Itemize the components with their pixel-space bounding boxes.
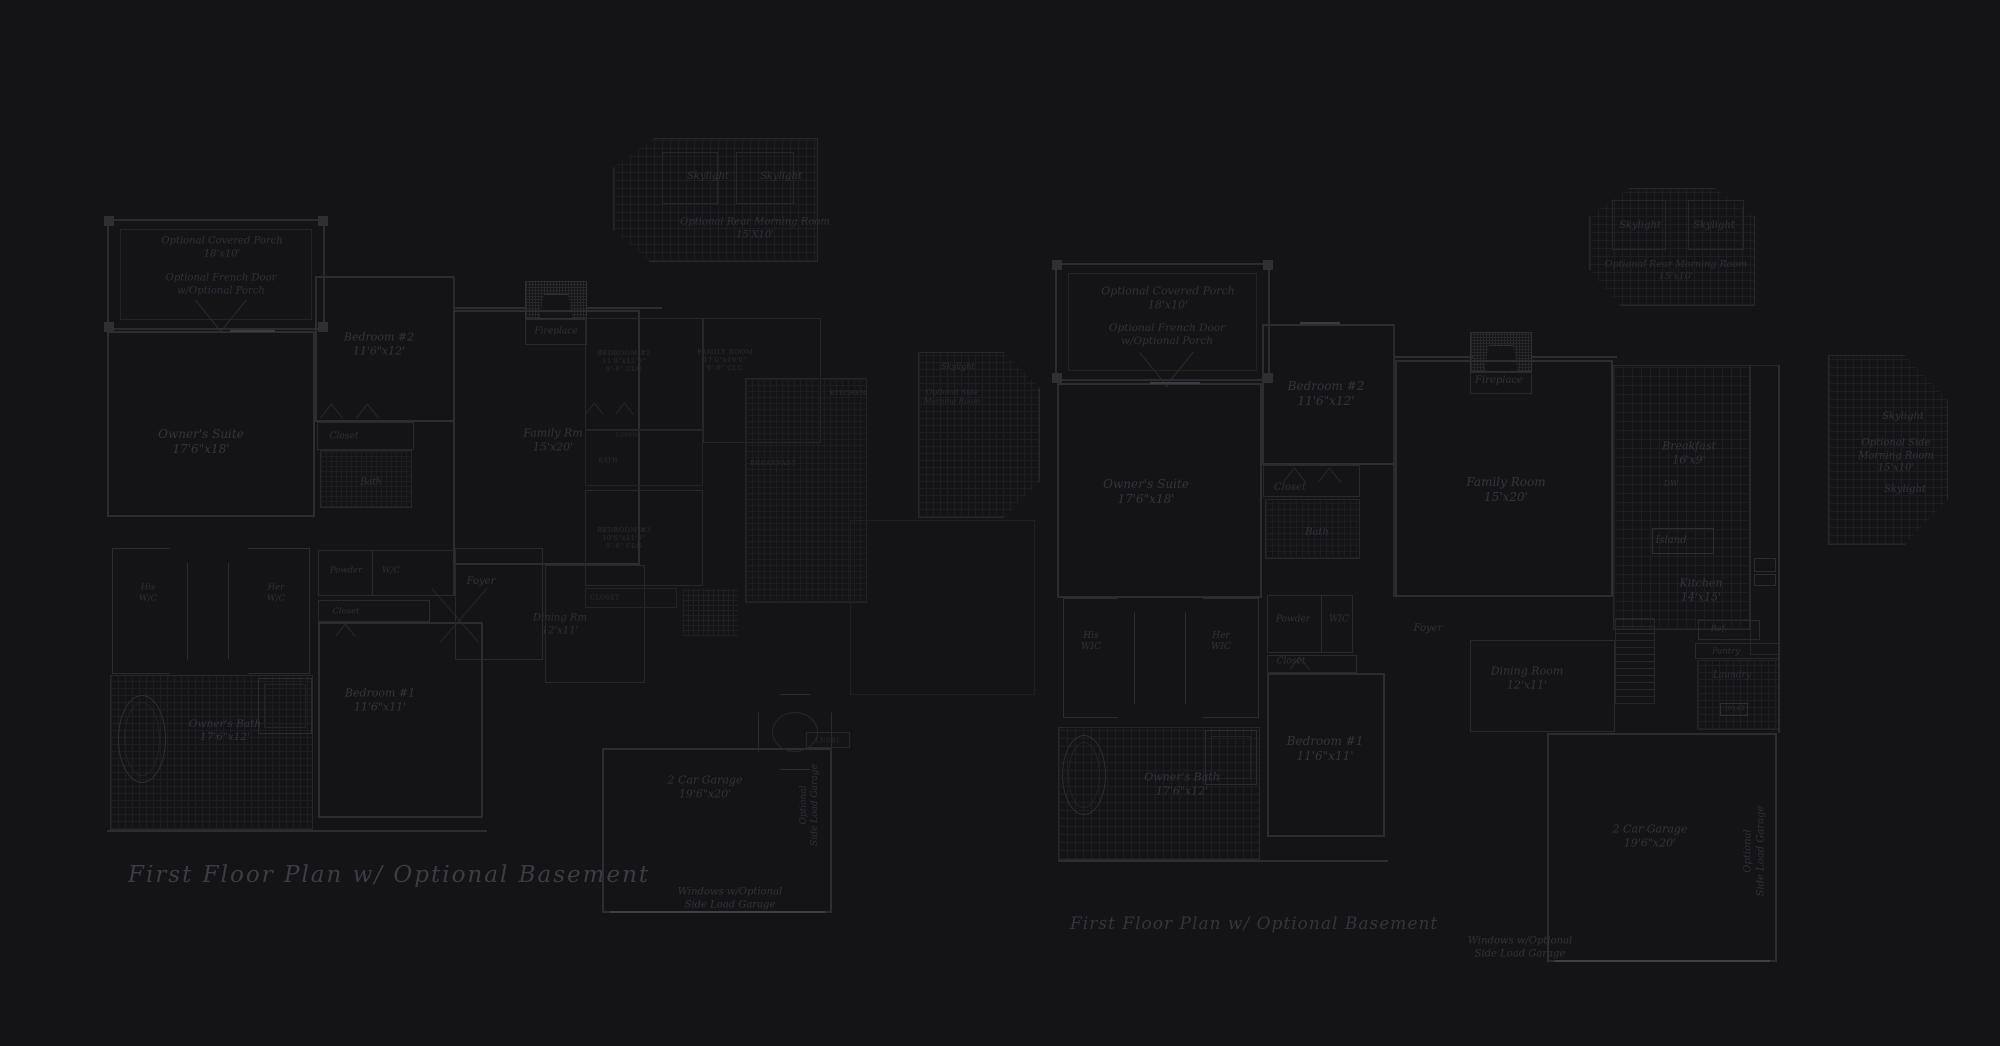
left-plan-title: First Floor Plan w/ Optional Basement [128,862,650,888]
right-breakfast-label: Breakfast16'x9' [1662,439,1716,467]
right-rear-skylight-1-label: Skylight [1619,220,1661,233]
left-his-wic-label: HisW/C [139,582,157,603]
left-powder-label: Powder [330,566,362,577]
left-her-wic-room [228,548,310,674]
right-dining-room-label: Dining Room12'x11' [1491,664,1564,692]
right-rear-skylight-2-label: Skylight [1693,220,1735,233]
mid-bedroom2-label: BEDROOM #211'0"x12'0"9'-0" CLG [597,349,651,373]
left-house-bottom-wall [107,830,487,832]
right-tub-inner [1068,742,1100,808]
right-closet-label: Closet [1277,656,1306,667]
floor-plan-canvas: First Floor Plan w/ Optional Basement Fi… [0,0,2000,1046]
right-pantry-label: Pantry [1712,647,1740,658]
left-family-room-label: Family Rm15'x20' [523,426,582,454]
right-her-wic-room [1185,598,1259,718]
right-her-wic-label: HerWIC [1211,631,1231,654]
left-porch-post-tl [104,216,114,226]
mid-lndry-label: LNDRY [816,737,841,745]
left-owners-bath-label: Owner's Bath17'6"x12' [189,718,261,744]
right-laundry-label: Laundry [1713,670,1751,681]
mid-bath-label: BATH [598,457,618,465]
left-rear-morning-room-label: Optional Rear Morning Room15'X10' [680,217,830,242]
left-owners-suite-label: Owner's Suite17'6"x18' [158,427,244,457]
right-his-wic-label: HisWIC [1081,631,1101,654]
right-house-right-wall [1778,365,1780,733]
mid-family-room-label: FAMILY ROOM17'0"x19'0"9'-0" CLG [697,348,753,372]
left-garage-label: 2 Car Garage19'6"x20' [668,773,743,801]
left-foyer-room [455,548,543,660]
right-closet-b2-label: Closet [1274,482,1306,495]
left-porch-label: Optional Covered Porch18'x10' [161,236,282,261]
right-ref-label: Ref. [1711,624,1727,634]
left-porch-post-tr [318,216,328,226]
right-foyer-label: Foyer [1414,623,1443,636]
right-side-load-garage-label: OptionalSide Load Garage [1743,806,1768,897]
mid-bedroom3-label: BEDROOM #310'6"x11'0"9'-0" CLG [597,526,651,550]
right-powder-label: Powder [1276,614,1310,625]
left-skylight-1-label: Skylight [687,171,729,184]
right-bedroom1-label: Bedroom #111'6"x11' [1287,734,1364,764]
right-side-morning-room-label: Optional SideMorning Room15'x10' [1858,437,1934,475]
right-side-skylight-2-label: Skylight [1884,484,1926,497]
right-owners-suite-label: Owner's Suite17'6"x18' [1103,477,1189,507]
left-side-load-garage-label: OptionalSide Load Garage [799,764,822,846]
right-porch-post-tl [1052,260,1062,270]
left-french-door-label: Optional French Doorw/Optional Porch [166,273,277,298]
mid-stair-floor [683,588,738,636]
right-porch-post-tr [1263,260,1273,270]
right-plan-title: First Floor Plan w/ Optional Basement [1070,914,1438,934]
right-french-door-label: Optional French Doorw/Optional Porch [1109,322,1225,348]
left-bedroom1-label: Bedroom #111'6"x11' [345,686,415,714]
right-top-wall-a [1395,356,1473,358]
mid-side-morning-floor [918,352,1040,518]
right-wic-label: WIC [1329,614,1349,625]
left-tub-inner [124,702,160,776]
left-top-wall-a [455,307,527,309]
mid-side-morning-room-label: Optional SideMorning Room [924,388,981,407]
right-bath-label: Bath [1305,527,1329,540]
right-wall-accent [1150,382,1200,384]
left-owners-suite-room [107,331,315,517]
right-rear-morning-room-label: Optional Rear Morning Room15'x10' [1605,259,1747,283]
right-garage-label: 2 Car Garage19'6"x20' [1613,822,1688,850]
left-dining-label: Dining Rm12'x11' [533,613,587,638]
right-stairs [1615,618,1655,704]
right-sink-b [1754,574,1776,586]
right-fireplace-label: Fireplace [1475,375,1523,388]
mid-skylight-label: Skylight [941,362,974,372]
left-fireplace-label: Fireplace [534,326,577,337]
right-bedroom2-label: Bedroom #211'6"x12' [1288,379,1365,409]
mid-breakfast-label: BREAKFAST [750,459,796,467]
left-shower-inner [264,684,306,728]
right-family-room-label: Family Room15'x20' [1466,475,1545,505]
right-windows-note-label: Windows w/OptionalSide Load Garage [1468,936,1572,961]
left-his-wic-room [112,548,188,674]
left-bedroom2-label: Bedroom #211'6"x12' [344,330,414,358]
left-closet-b2-label: Closet [330,431,359,442]
left-closet2-label: Closet [332,607,359,618]
mid-kitchen-floor [745,378,867,603]
mid-linen-label: LINEN [616,433,638,440]
right-sink-a [1754,558,1776,572]
left-powder-divider [372,550,373,596]
right-dw-label: DW [1664,479,1679,489]
left-top-wall-b [587,307,662,309]
right-island-label: Island [1655,535,1686,548]
right-porch-post-bl [1052,373,1062,383]
right-owners-bath-label: Owner's Bath17'6"x12' [1144,770,1220,798]
right-30x48-label: 30x48 [1723,705,1745,714]
right-top-wall-b [1532,356,1617,358]
right-garage-door-sill [1555,960,1770,962]
right-counter-strip [1750,365,1780,655]
left-wall-accent [230,330,275,332]
left-bath-label: Bath [360,477,381,488]
right-ref-box [1698,620,1760,640]
right-house-bottom-wall [1058,860,1388,862]
left-foyer-label: Foyer [467,576,496,589]
left-her-wic-label: HerW/C [267,582,285,603]
mid-closet-label: CLOSET [591,594,620,602]
left-skylight-2-label: Skylight [760,171,802,184]
left-windows-note-label: Windows w/OptionalSide Load Garage [678,887,782,912]
right-side-skylight-1-label: Skylight [1882,411,1924,424]
right-wall-accent [1300,322,1340,324]
mid-right-rooms [850,520,1035,695]
right-porch-label: Optional Covered Porch18'x10' [1101,284,1234,312]
right-kitchen-label: Kitchen14'x15' [1680,576,1723,604]
left-wc-label: W/C [382,566,400,577]
right-powder-divider [1321,595,1322,653]
mid-kitchen-label: KITCHEN [830,389,866,397]
right-his-wic-room [1063,598,1135,718]
